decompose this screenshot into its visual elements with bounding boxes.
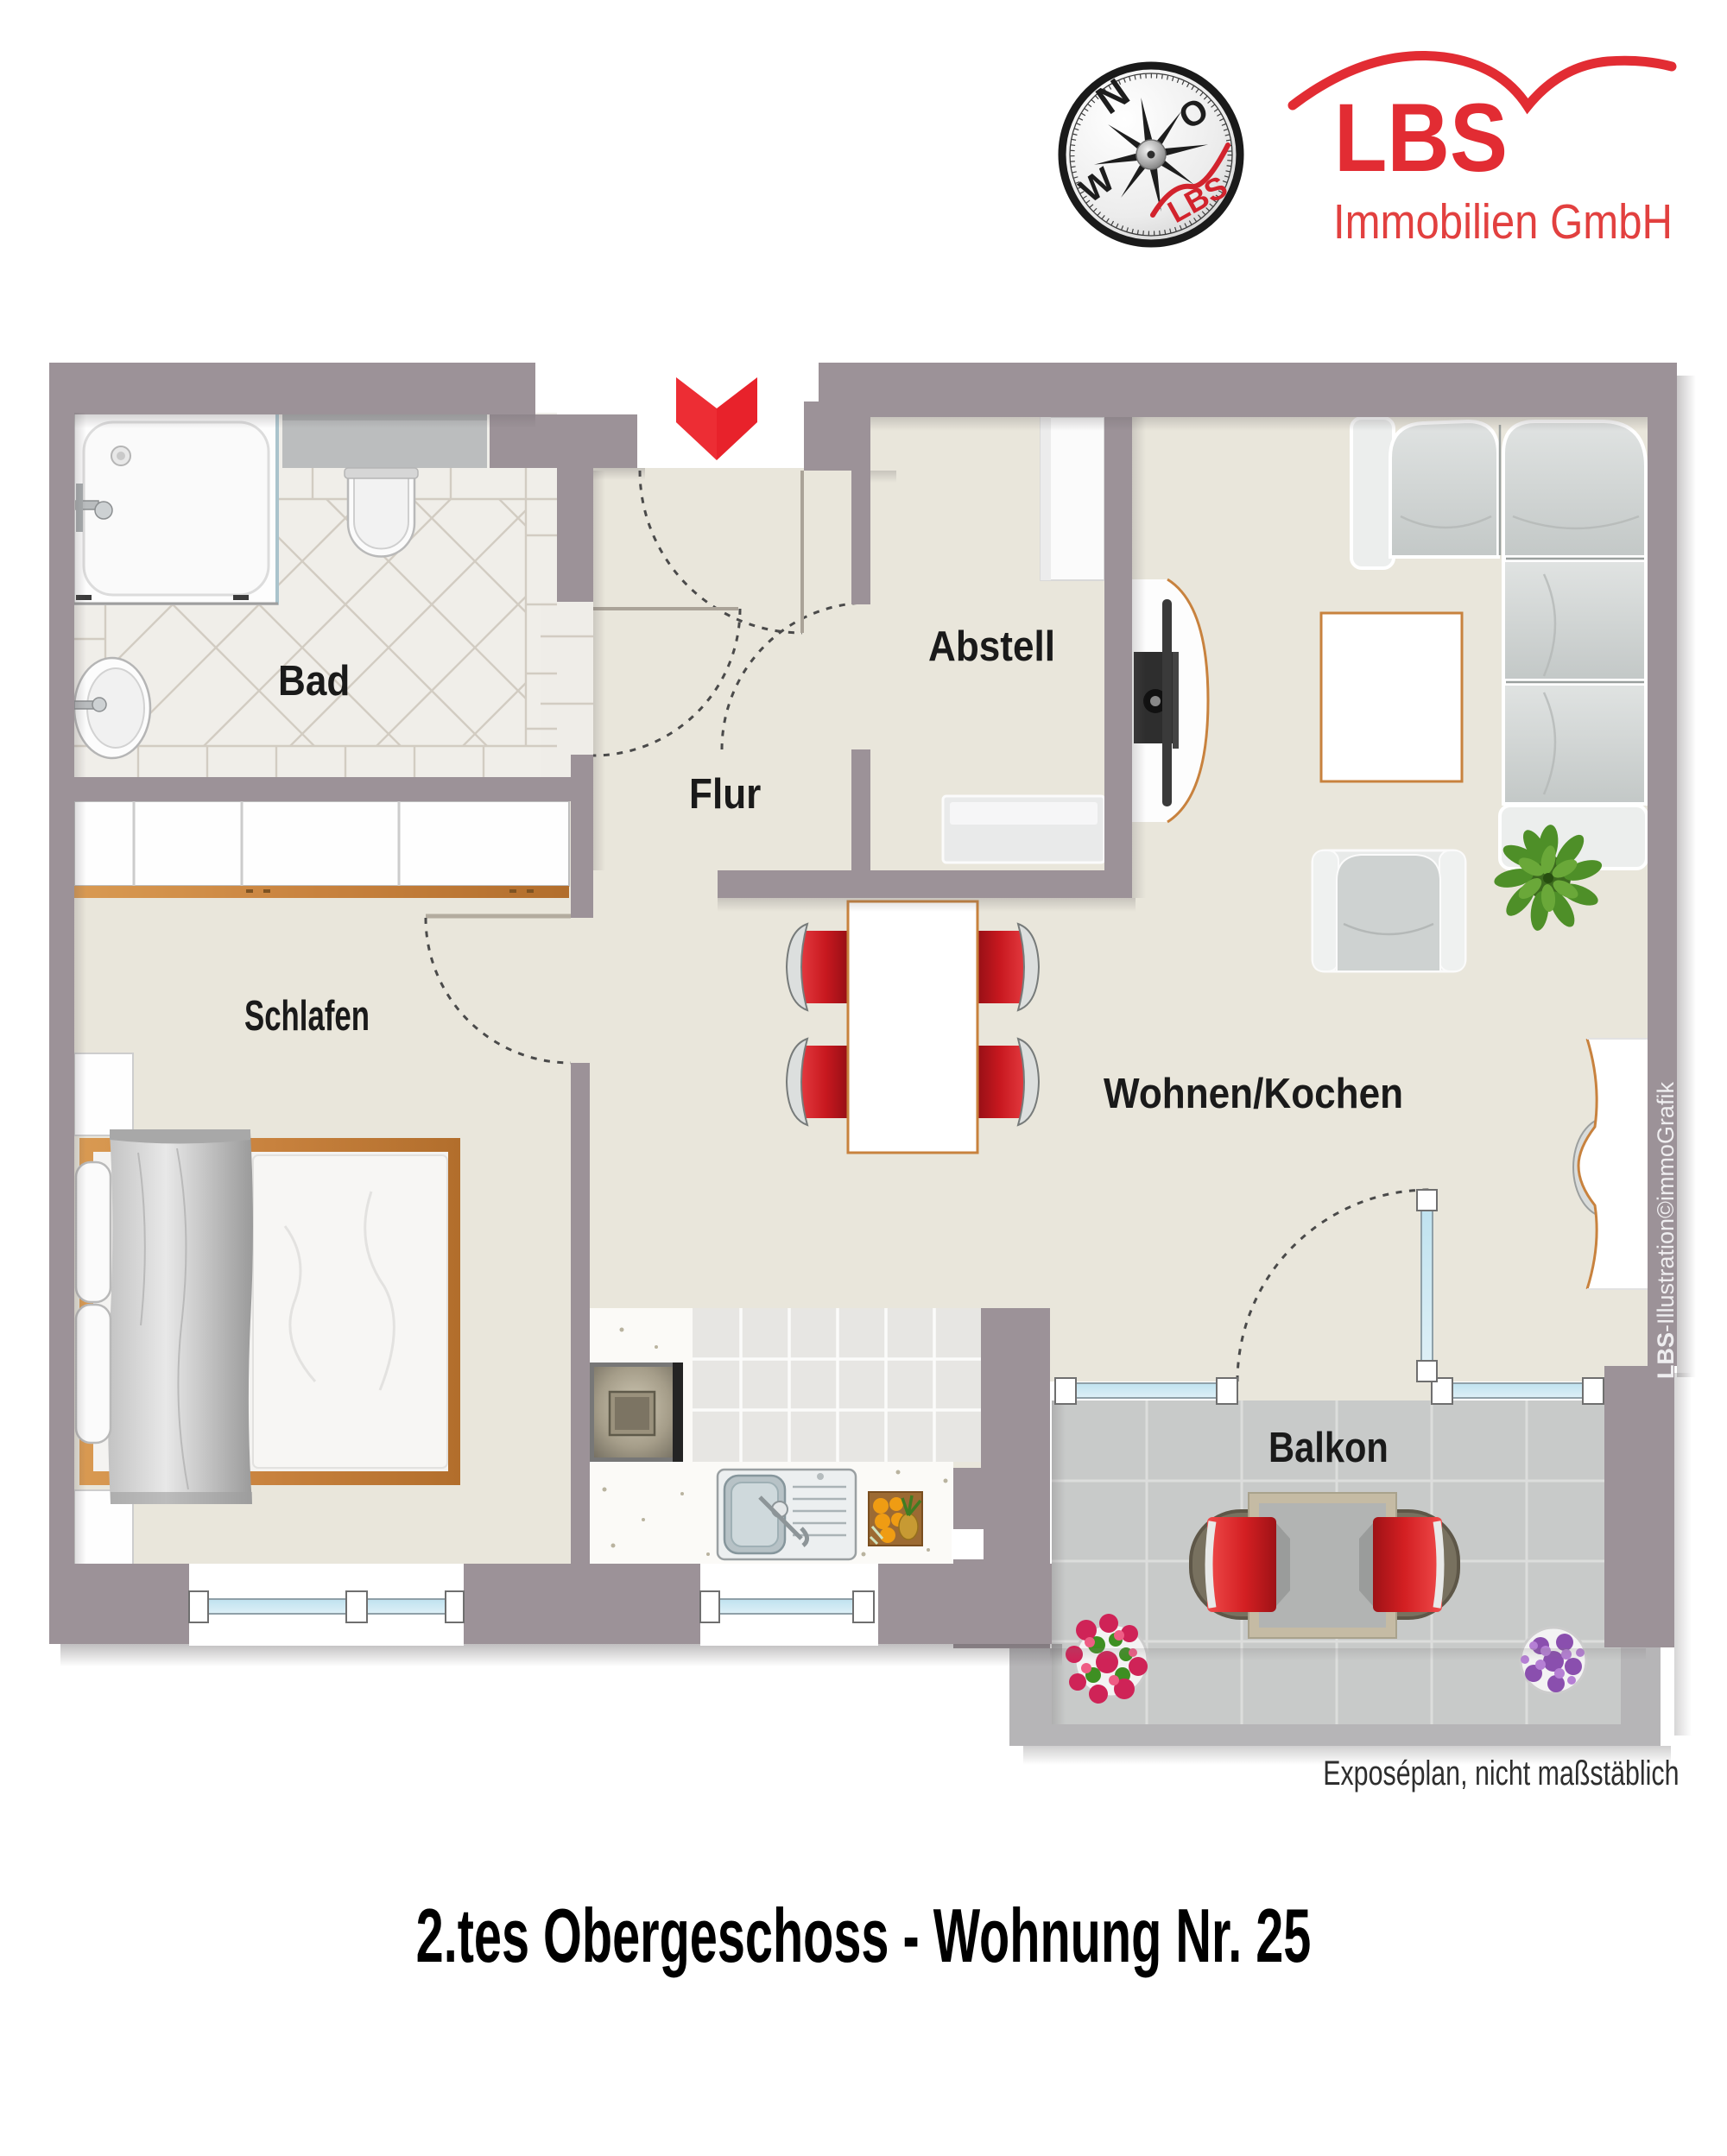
- svg-text:LBS-Illustration©immoGrafik: LBS-Illustration©immoGrafik: [1653, 1082, 1679, 1379]
- svg-text:LBS: LBS: [1334, 84, 1508, 192]
- svg-text:Immobilien GmbH: Immobilien GmbH: [1333, 194, 1673, 250]
